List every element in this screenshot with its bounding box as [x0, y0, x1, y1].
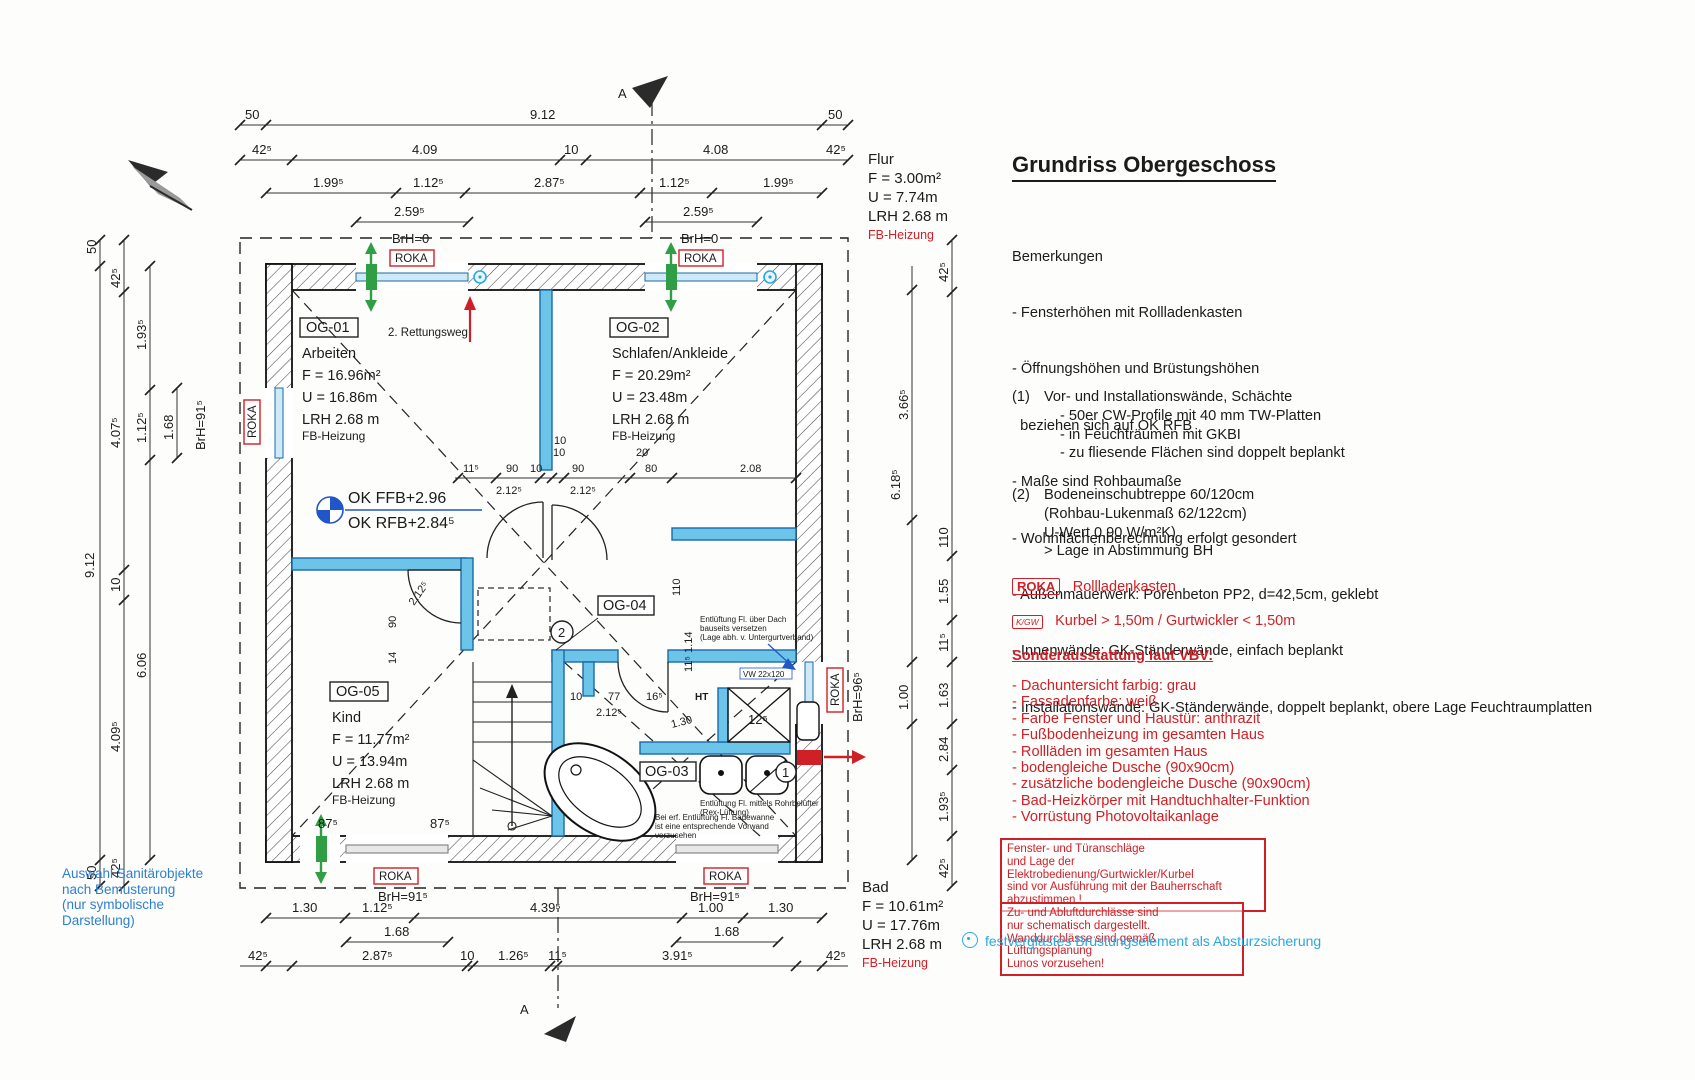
svg-text:OG-05: OG-05 — [336, 684, 380, 700]
dim: 11⁵ 1.14 — [683, 632, 695, 672]
svg-text:Arbeiten: Arbeiten — [302, 346, 356, 362]
svg-text:U = 16.86m: U = 16.86m — [302, 390, 377, 406]
svg-text:F = 20.29m²: F = 20.29m² — [612, 368, 691, 384]
dim-bottom — [240, 913, 848, 971]
dim: 2.87⁵ — [534, 175, 565, 190]
svg-text:FB-Heizung: FB-Heizung — [612, 429, 675, 443]
room-og01: OG-01 Arbeiten F = 16.96m² U = 16.86m LR… — [300, 318, 381, 443]
page-title: Grundriss Obergeschoss — [1012, 152, 1276, 182]
svg-text:FB-Heizung: FB-Heizung — [332, 793, 395, 807]
drawing-sheet: A A — [0, 0, 1695, 1080]
roka-top-left: ROKA — [395, 253, 428, 265]
dim: 2.59⁵ — [683, 204, 714, 219]
dim: 2.87⁵ — [362, 948, 393, 963]
roka-tag: ROKA — [1012, 578, 1060, 595]
svg-text:bauseits versetzen: bauseits versetzen — [700, 624, 767, 633]
dim: 50 — [84, 240, 99, 254]
dim: 2.12⁵ — [570, 485, 596, 497]
roka-bottom-right: ROKA — [709, 871, 742, 883]
dim: 1.30 — [670, 714, 694, 731]
dim: 42⁵ — [936, 262, 951, 282]
glazing-note: festverglastes Brüstungselement als Abst… — [962, 932, 1321, 949]
sonder-list: - Dachuntersicht farbig: grau - Fassaden… — [1012, 678, 1412, 826]
dim: 42⁵ — [826, 142, 846, 157]
dim: 87⁵ — [318, 816, 338, 831]
dim: 1.93⁵ — [134, 319, 149, 350]
svg-text:FB-Heizung: FB-Heizung — [302, 429, 365, 443]
svg-text:VW 22x120: VW 22x120 — [743, 670, 785, 679]
dim: 4.39⁵ — [530, 900, 561, 915]
svg-text:vorzusehen: vorzusehen — [655, 831, 696, 840]
ht-label: HT — [695, 692, 708, 703]
sonder-heading: Sonderausstattung laut VBV: — [1012, 648, 1213, 664]
svg-text:OG-01: OG-01 — [306, 320, 350, 336]
room-og04: OG-04 — [556, 596, 654, 650]
dim: 42⁵ — [108, 268, 123, 288]
dim: 1.12⁵ — [134, 412, 149, 443]
dim: 11⁵ — [463, 463, 479, 475]
level-rfb: OK RFB+2.84⁵ — [348, 515, 455, 532]
kgw-tag: K/GW — [1012, 615, 1043, 629]
dim: 1.99⁵ — [763, 175, 794, 190]
svg-text:Kind: Kind — [332, 710, 361, 726]
dim: 42⁵ — [826, 948, 846, 963]
roka-top-right: ROKA — [684, 253, 717, 265]
dim: 90 — [572, 463, 584, 475]
dim: 1.68 — [384, 924, 409, 939]
dim: 42⁵ — [252, 142, 272, 157]
svg-text:OG-02: OG-02 — [616, 320, 660, 336]
svg-text:U = 23.48m: U = 23.48m — [612, 390, 687, 406]
dim: 77 — [608, 691, 620, 703]
dim: 1.68 — [714, 924, 739, 939]
dim: 11⁵ — [548, 948, 567, 963]
dim: 12⁵ — [748, 712, 768, 727]
section-marker-bottom — [544, 1016, 576, 1042]
red-vent-icon — [797, 750, 866, 765]
dim: 80 — [645, 463, 657, 475]
dim: 1.30 — [768, 900, 793, 915]
svg-text:Entlüftung Fl. über Dach: Entlüftung Fl. über Dach — [700, 615, 786, 624]
svg-text:Schlafen/Ankleide: Schlafen/Ankleide — [612, 346, 728, 362]
dim: 16⁵ — [646, 691, 663, 703]
svg-text:ist eine entsprechende Vorwand: ist eine entsprechende Vorwand — [655, 822, 769, 831]
svg-text:U = 13.94m: U = 13.94m — [332, 754, 407, 770]
dim: 6.06 — [134, 653, 149, 678]
svg-text:F = 11.77m²: F = 11.77m² — [332, 732, 410, 748]
dim: 10 — [108, 578, 123, 592]
svg-text:OG-04: OG-04 — [603, 598, 647, 614]
dim: 4.08 — [703, 142, 728, 157]
dim: 10 — [553, 447, 565, 459]
dim: 42⁵ — [248, 948, 268, 963]
keynote-1-block: (1)Vor- und Installationswände, Schächte… — [1012, 388, 1572, 463]
dim: 1.00 — [896, 685, 911, 710]
svg-text:OG-03: OG-03 — [645, 764, 689, 780]
dim: 90 — [506, 463, 518, 475]
dim: 110 — [936, 527, 951, 548]
dim: 4.07⁵ — [108, 417, 123, 448]
dim-top — [235, 120, 853, 227]
dim: 1.30 — [292, 900, 317, 915]
radiator — [797, 702, 819, 740]
dim: 110 — [671, 578, 683, 596]
dim: 4.09 — [412, 142, 437, 157]
dim: 20 — [636, 447, 648, 459]
dim: 11⁵ — [936, 633, 951, 652]
dim: 1.55 — [936, 579, 951, 604]
dim: 90 — [387, 616, 399, 628]
dim: 1.26⁵ — [498, 948, 529, 963]
roka-bottom-left: ROKA — [379, 871, 412, 883]
brh-label: BrH=0 — [681, 231, 718, 246]
section-marker-top — [632, 76, 668, 108]
dim: 1.99⁵ — [313, 175, 344, 190]
dim: 2.12⁵ — [596, 707, 622, 719]
sanitary-note: Auswahl Sanitärobjekte nach Bemusterung … — [62, 866, 203, 928]
dim: 10 — [460, 948, 474, 963]
brh-label: BrH=96⁵ — [850, 672, 865, 722]
dim: 1.12⁵ — [413, 175, 444, 190]
dim: 14 — [387, 652, 399, 664]
dim: 2.08 — [740, 463, 761, 475]
legend-roka: ROKA Rollladenkasten — [1012, 578, 1176, 596]
brh-label: BrH=91⁵ — [690, 889, 740, 904]
dim: 9.12 — [82, 553, 97, 578]
svg-text:(Lage abh. v. Untergurtverband: (Lage abh. v. Untergurtverband) — [700, 633, 814, 642]
dim: 3.66⁵ — [896, 389, 911, 420]
dim: 42⁵ — [936, 858, 951, 878]
dim: 50 — [245, 107, 259, 122]
brh-label: BrH=91⁵ — [378, 889, 428, 904]
svg-text:LRH 2.68 m: LRH 2.68 m — [332, 776, 409, 792]
brh-label: BrH=91⁵ — [193, 400, 208, 450]
svg-text:LRH 2.68 m: LRH 2.68 m — [302, 412, 379, 428]
dim: 2.59⁵ — [394, 204, 425, 219]
svg-text:Bei erf. Entlüftung Fl. Badewa: Bei erf. Entlüftung Fl. Badewanne — [655, 813, 775, 822]
vw-label: VW 22x120 — [740, 668, 792, 679]
dim: 1.93⁵ — [936, 791, 951, 822]
dim: 87⁵ — [430, 816, 450, 831]
section-letter-top: A — [618, 86, 627, 101]
dim: 9.12 — [530, 107, 555, 122]
brh-label: BrH=0 — [392, 231, 429, 246]
room-info-bad: Bad F = 10.61m² U = 17.76m LRH 2.68 m FB… — [862, 878, 943, 973]
remarks-heading: Bemerkungen — [1012, 248, 1587, 267]
dim: 2.12⁵ — [496, 485, 522, 497]
room-info-flur: Flur F = 3.00m² U = 7.74m LRH 2.68 m FB-… — [868, 150, 948, 245]
dim: 3.91⁵ — [662, 948, 693, 963]
glazing-icon — [962, 932, 978, 948]
dim: 1.63 — [936, 683, 951, 708]
keynote-1: 1 — [782, 765, 789, 780]
keynote-2-block: (2)Bodeneinschubtreppe 60/120cm (Rohbau-… — [1012, 486, 1572, 561]
room-og03: OG-03 — [640, 762, 696, 781]
roka-left: ROKA — [247, 405, 259, 438]
dim: 1.12⁵ — [659, 175, 690, 190]
dim: 1.68 — [161, 415, 176, 440]
rettungsweg-label: 2. Rettungsweg — [388, 327, 468, 339]
section-letter-bottom: A — [520, 1002, 529, 1017]
dim: 10 — [530, 463, 542, 475]
dim: 10 — [570, 691, 582, 703]
stairs — [473, 662, 552, 836]
keynote-2: 2 — [558, 625, 565, 640]
north-arrow-icon — [128, 160, 192, 210]
dim: 6.18⁵ — [888, 469, 903, 500]
dim: 10 — [564, 142, 578, 157]
svg-text:Entlüftung Fl. mittels Rohrbel: Entlüftung Fl. mittels Rohrbelüfter — [700, 799, 819, 808]
washbasins — [700, 756, 788, 794]
roka-right: ROKA — [830, 673, 842, 706]
svg-text:LRH 2.68 m: LRH 2.68 m — [612, 412, 689, 428]
room-og05: OG-05 Kind F = 11.77m² U = 13.94m LRH 2.… — [330, 682, 410, 807]
svg-text:F = 16.96m²: F = 16.96m² — [302, 368, 381, 384]
dim: 10 — [554, 435, 566, 447]
legend-kgw: K/GW Kurbel > 1,50m / Gurtwickler < 1,50… — [1012, 612, 1295, 630]
room-og02: OG-02 Schlafen/Ankleide F = 20.29m² U = … — [610, 318, 728, 443]
dim: 2.84 — [936, 737, 951, 762]
level-ffb: OK FFB+2.96 — [348, 490, 446, 507]
dim: 4.09⁵ — [108, 721, 123, 752]
dim: 50 — [828, 107, 842, 122]
warnbox-anschlaege: Fenster- und Türanschläge und Lage der E… — [1000, 838, 1266, 912]
